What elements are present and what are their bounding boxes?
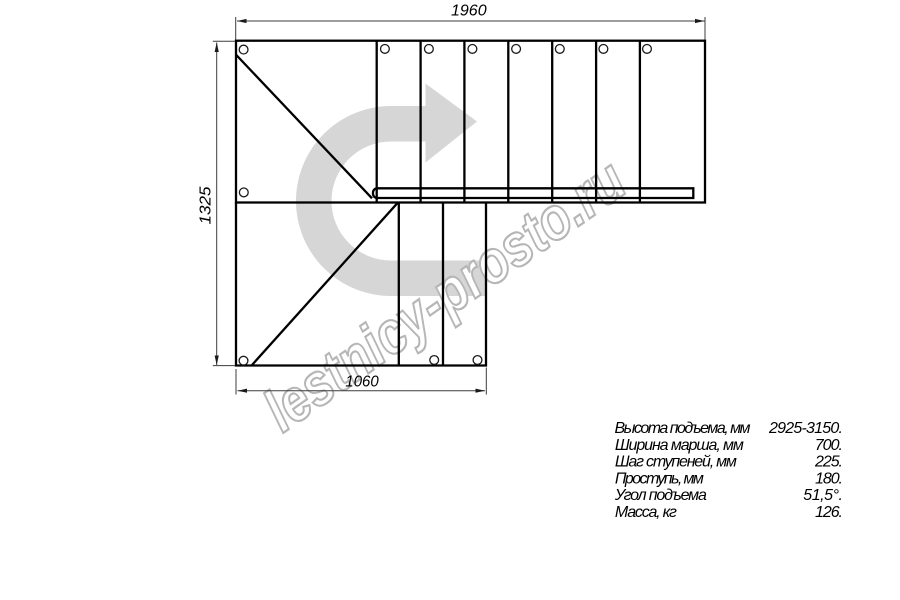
svg-text:2925-3150.: 2925-3150.: [768, 420, 843, 437]
svg-text:1325: 1325: [198, 186, 215, 224]
svg-text:Ширина марша, мм: Ширина марша, мм: [615, 437, 744, 454]
svg-text:Проступь, мм: Проступь, мм: [615, 470, 704, 487]
svg-text:51,5°.: 51,5°.: [803, 487, 843, 504]
svg-text:126.: 126.: [815, 504, 843, 521]
svg-text:Угол подъема: Угол подъема: [614, 487, 707, 504]
svg-text:Шаг ступеней, мм: Шаг ступеней, мм: [615, 454, 737, 471]
svg-text:Масса, кг: Масса, кг: [615, 504, 677, 521]
svg-text:1060: 1060: [345, 374, 378, 391]
svg-text:180.: 180.: [815, 470, 843, 487]
svg-text:Высота подъема, мм: Высота подъема, мм: [615, 420, 751, 437]
svg-text:700.: 700.: [815, 437, 843, 454]
svg-text:225.: 225.: [814, 454, 843, 471]
svg-text:1960: 1960: [451, 3, 487, 20]
